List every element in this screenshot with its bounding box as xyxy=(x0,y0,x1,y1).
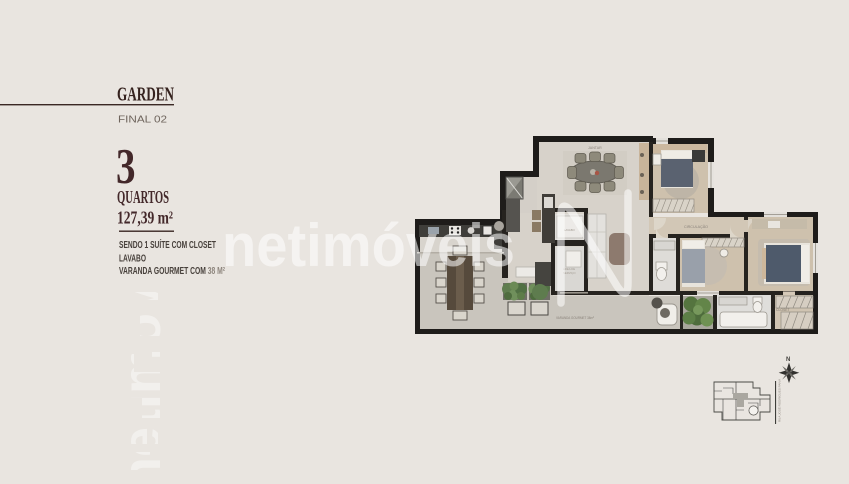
svg-text:127,39 m²: 127,39 m² xyxy=(117,208,173,228)
svg-text:JANTAR: JANTAR xyxy=(588,146,602,150)
svg-text:SENDO 1 SUÍTE COM CLOSET: SENDO 1 SUÍTE COM CLOSET xyxy=(119,240,216,251)
svg-text:3: 3 xyxy=(116,138,136,194)
svg-text:GARDEN: GARDEN xyxy=(117,84,174,106)
svg-text:N: N xyxy=(786,357,790,363)
svg-text:netimóveis: netimóveis xyxy=(222,212,515,279)
svg-text:SERVIÇO: SERVIÇO xyxy=(563,271,576,275)
svg-text:VARANDA GOURMET COM 38 M²: VARANDA GOURMET COM 38 M² xyxy=(119,266,226,277)
svg-text:FINAL 02: FINAL 02 xyxy=(118,114,167,126)
svg-text:QUARTOS: QUARTOS xyxy=(117,187,169,207)
svg-text:LAVABO: LAVABO xyxy=(119,253,146,264)
svg-text:CLOSET: CLOSET xyxy=(776,308,790,312)
svg-text:VARANDA GOURMET 38m²: VARANDA GOURMET 38m² xyxy=(556,316,595,320)
svg-text:CIRCULAÇÃO: CIRCULAÇÃO xyxy=(684,224,708,229)
svg-text:RUA JOSÉ RODRIGUES PAIVA: RUA JOSÉ RODRIGUES PAIVA xyxy=(777,379,782,422)
svg-text:LAVABO: LAVABO xyxy=(564,228,576,232)
